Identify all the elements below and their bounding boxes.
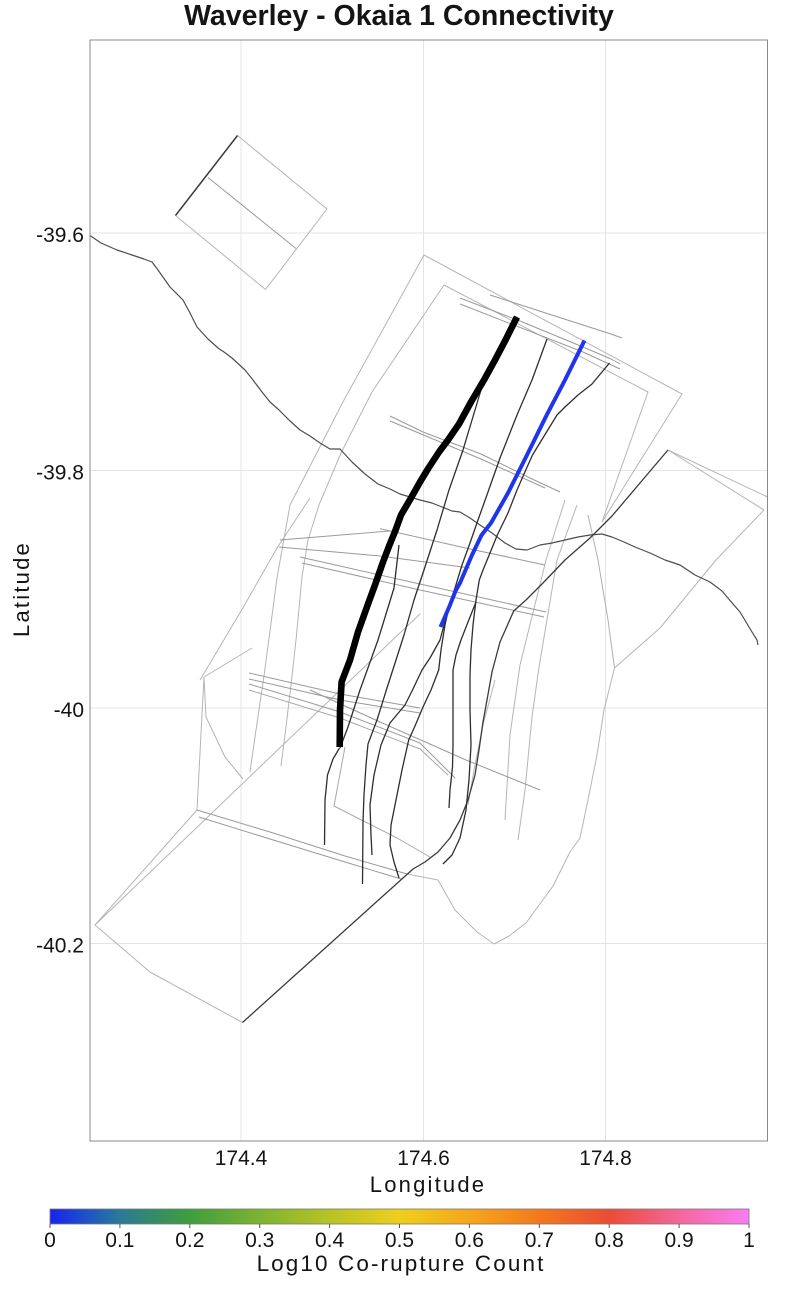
svg-text:0.4: 0.4 bbox=[315, 1229, 345, 1252]
svg-text:-39.6: -39.6 bbox=[36, 224, 84, 247]
svg-text:0.7: 0.7 bbox=[525, 1229, 554, 1252]
svg-text:-40: -40 bbox=[54, 699, 84, 722]
svg-text:174.4: 174.4 bbox=[215, 1147, 268, 1170]
svg-text:174.8: 174.8 bbox=[579, 1147, 632, 1170]
svg-text:-39.8: -39.8 bbox=[36, 462, 84, 485]
svg-text:0.9: 0.9 bbox=[664, 1229, 693, 1252]
svg-text:0: 0 bbox=[44, 1229, 56, 1252]
svg-text:1: 1 bbox=[743, 1229, 755, 1252]
svg-text:Latitude: Latitude bbox=[9, 541, 34, 637]
svg-text:0.2: 0.2 bbox=[175, 1229, 204, 1252]
svg-text:Waverley - Okaia 1 Connectivit: Waverley - Okaia 1 Connectivity bbox=[184, 0, 614, 32]
svg-text:0.3: 0.3 bbox=[245, 1229, 274, 1252]
svg-text:Log10 Co-rupture Count: Log10 Co-rupture Count bbox=[257, 1251, 546, 1276]
svg-text:174.6: 174.6 bbox=[397, 1147, 450, 1170]
svg-text:0.8: 0.8 bbox=[595, 1229, 624, 1252]
svg-text:-40.2: -40.2 bbox=[36, 935, 84, 958]
svg-text:Longitude: Longitude bbox=[370, 1172, 486, 1197]
svg-text:0.1: 0.1 bbox=[105, 1229, 134, 1252]
svg-text:0.6: 0.6 bbox=[455, 1229, 484, 1252]
svg-text:0.5: 0.5 bbox=[385, 1229, 414, 1252]
